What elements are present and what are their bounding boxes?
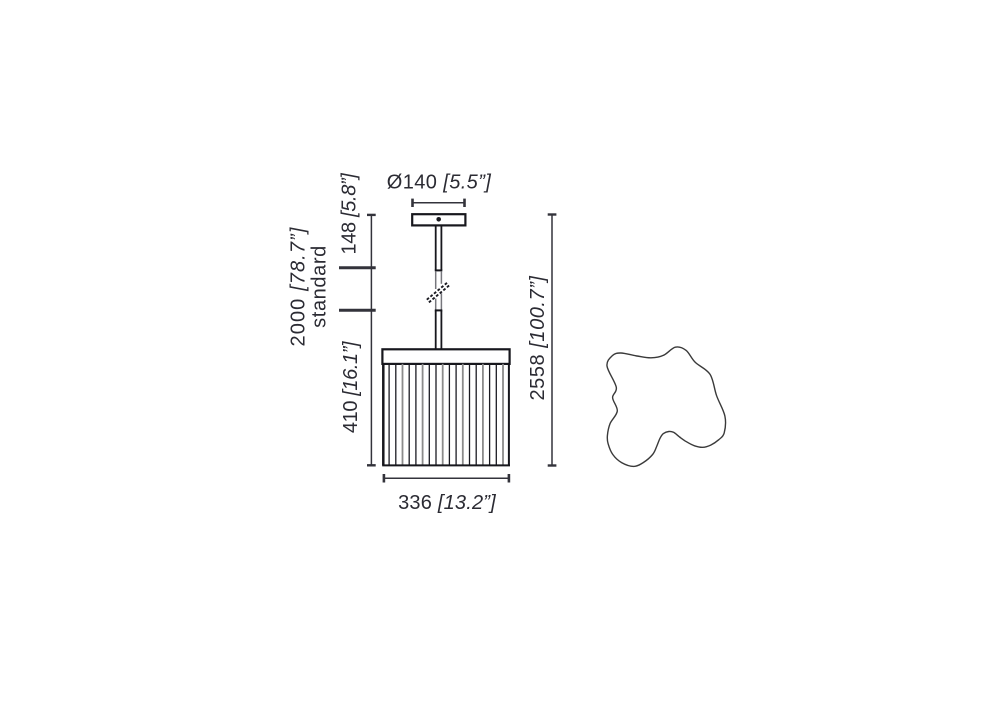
svg-text:2558 [100.7”]: 2558 [100.7”]	[527, 275, 549, 400]
svg-text:148 [5.8”]: 148 [5.8”]	[339, 173, 361, 255]
svg-text:2000 [78.7”]: 2000 [78.7”]	[288, 227, 310, 347]
svg-text:standard: standard	[308, 245, 330, 328]
svg-text:336 [13.2”]: 336 [13.2”]	[398, 492, 496, 514]
svg-text:Ø140 [5.5”]: Ø140 [5.5”]	[387, 172, 492, 194]
svg-text:410 [16.1”]: 410 [16.1”]	[340, 341, 362, 433]
